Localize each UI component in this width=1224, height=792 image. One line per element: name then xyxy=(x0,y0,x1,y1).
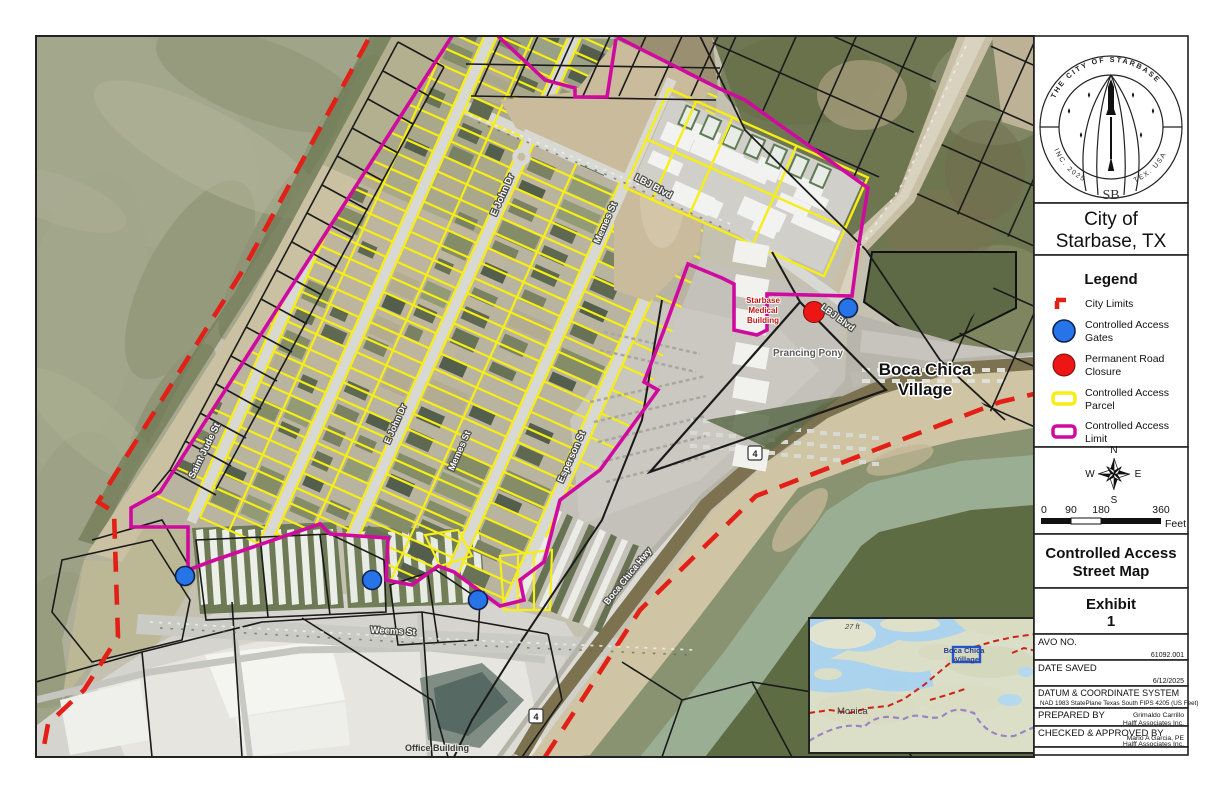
svg-text:Controlled Access: Controlled Access xyxy=(1085,420,1169,432)
svg-text:1: 1 xyxy=(1107,613,1115,630)
svg-text:6/12/2025: 6/12/2025 xyxy=(1153,678,1184,685)
svg-text:360: 360 xyxy=(1152,504,1170,516)
svg-text:DATE SAVED: DATE SAVED xyxy=(1038,663,1097,674)
svg-text:0: 0 xyxy=(1041,504,1047,516)
svg-text:Exhibit: Exhibit xyxy=(1086,596,1136,613)
svg-text:W: W xyxy=(1085,469,1095,480)
svg-text:N: N xyxy=(1110,445,1117,456)
svg-text:4: 4 xyxy=(533,712,538,722)
svg-text:Permanent Road: Permanent Road xyxy=(1085,353,1165,365)
svg-text:DATUM & COORDINATE SYSTEM: DATUM & COORDINATE SYSTEM xyxy=(1038,688,1179,698)
svg-text:180: 180 xyxy=(1092,504,1110,516)
svg-text:4: 4 xyxy=(752,449,757,459)
svg-text:Village: Village xyxy=(955,655,979,664)
svg-text:PREPARED BY: PREPARED BY xyxy=(1038,710,1106,721)
svg-text:Feet: Feet xyxy=(1165,518,1186,530)
svg-text:Medical: Medical xyxy=(748,306,777,315)
svg-text:61092.001: 61092.001 xyxy=(1151,652,1184,659)
svg-text:Boca Chica: Boca Chica xyxy=(879,360,972,379)
svg-text:Starbase: Starbase xyxy=(746,296,780,305)
svg-text:Street Map: Street Map xyxy=(1073,563,1150,580)
svg-text:Legend: Legend xyxy=(1084,271,1137,288)
svg-text:Prancing Pony: Prancing Pony xyxy=(773,348,843,359)
svg-text:Starbase, TX: Starbase, TX xyxy=(1056,231,1167,252)
svg-text:Controlled Access: Controlled Access xyxy=(1085,319,1169,331)
svg-text:City of: City of xyxy=(1084,209,1139,230)
svg-text:Building: Building xyxy=(747,316,779,325)
svg-text:Village: Village xyxy=(898,380,953,399)
svg-text:27 ft: 27 ft xyxy=(844,622,861,631)
svg-text:Controlled Access: Controlled Access xyxy=(1045,545,1176,562)
svg-text:Office Building: Office Building xyxy=(405,743,469,753)
svg-text:Controlled Access: Controlled Access xyxy=(1085,387,1169,399)
svg-text:S: S xyxy=(1111,495,1118,506)
svg-text:Boca Chica: Boca Chica xyxy=(944,646,986,655)
svg-text:Parcel: Parcel xyxy=(1085,400,1115,412)
svg-text:Closure: Closure xyxy=(1085,366,1121,378)
svg-text:Limit: Limit xyxy=(1085,433,1107,445)
svg-text:NAD 1983 StatePlane Texas Sout: NAD 1983 StatePlane Texas South FIPS 420… xyxy=(1040,700,1198,707)
svg-text:E: E xyxy=(1135,469,1142,480)
svg-text:Gates: Gates xyxy=(1085,332,1113,344)
svg-text:Grimaldo Carrillo: Grimaldo Carrillo xyxy=(1133,712,1184,719)
svg-text:Monica: Monica xyxy=(837,706,868,717)
svg-text:90: 90 xyxy=(1065,504,1077,516)
svg-text:SB: SB xyxy=(1102,188,1119,203)
svg-text:City Limits: City Limits xyxy=(1085,298,1133,310)
svg-text:AVO NO.: AVO NO. xyxy=(1038,637,1077,648)
